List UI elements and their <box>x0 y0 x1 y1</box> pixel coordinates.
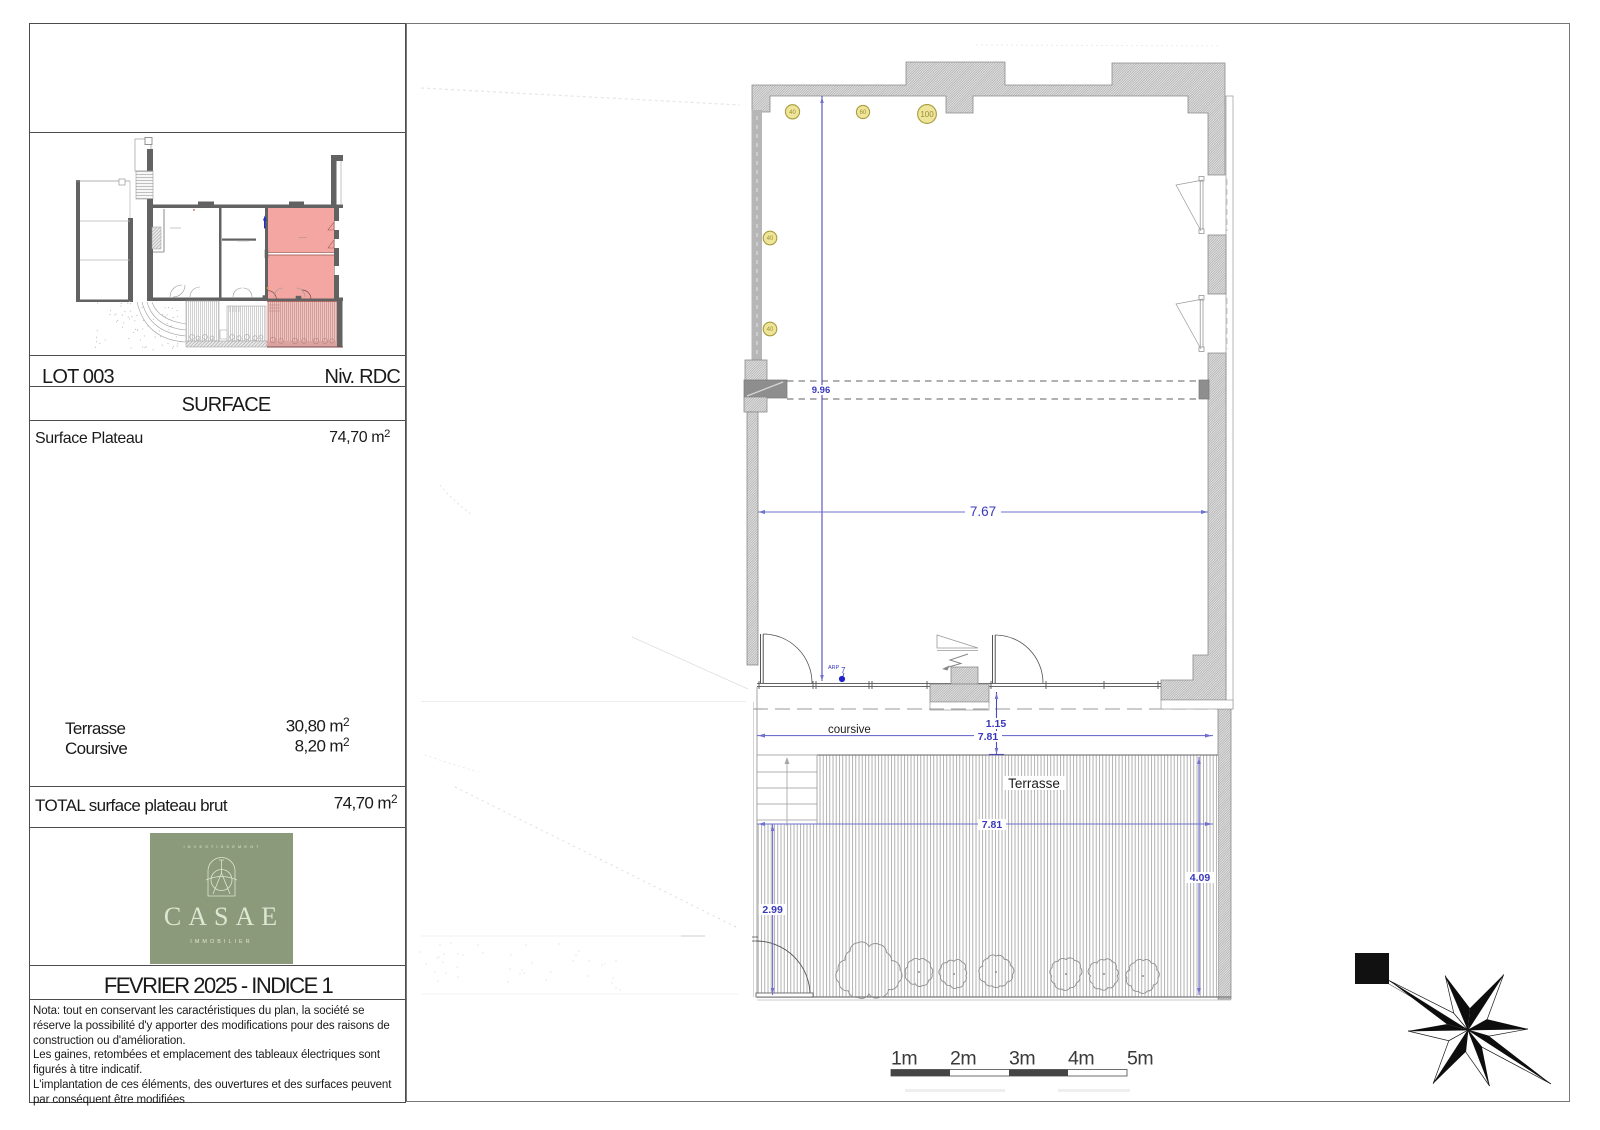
svg-text:CASAE: CASAE <box>164 902 284 931</box>
svg-text:I N V E S T I S S E M E N T: I N V E S T I S S E M E N T <box>183 844 259 849</box>
svg-text:IMMOBILIER: IMMOBILIER <box>190 939 252 945</box>
